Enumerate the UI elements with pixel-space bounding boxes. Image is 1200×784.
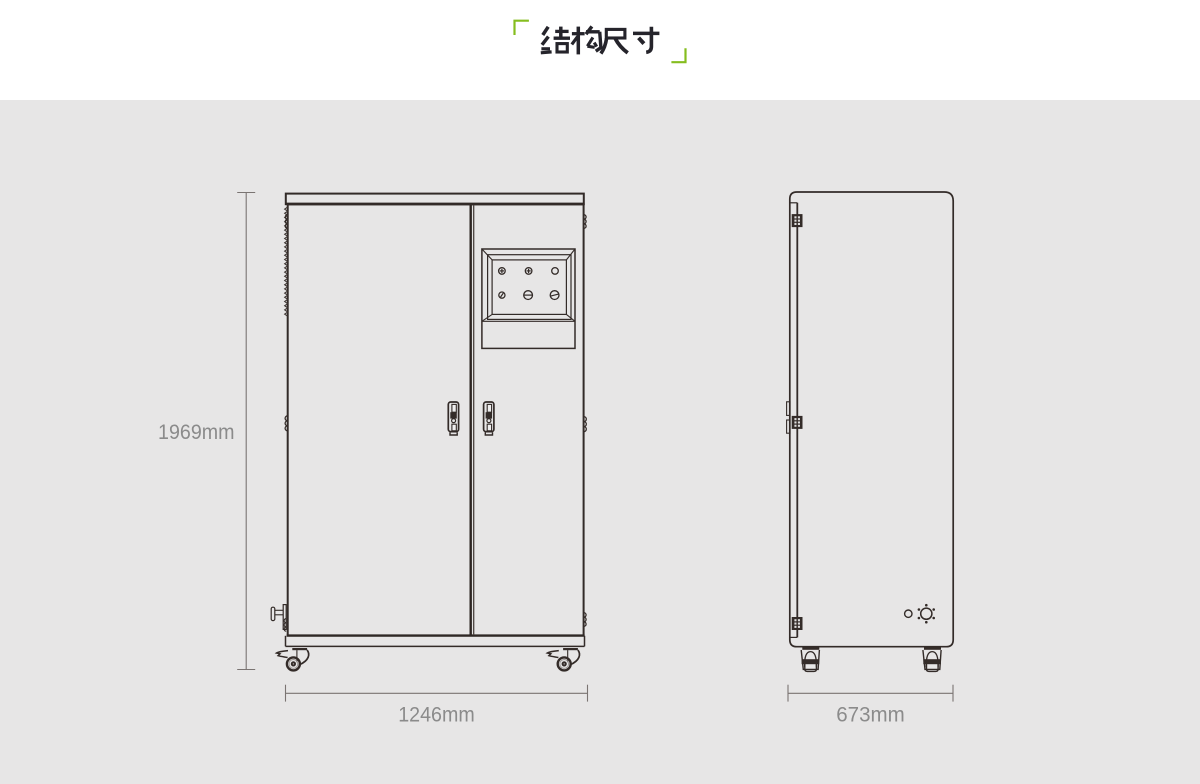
svg-text:1969mm: 1969mm [158,420,235,444]
svg-text:673mm: 673mm [836,703,905,727]
svg-text:1246mm: 1246mm [398,703,475,727]
